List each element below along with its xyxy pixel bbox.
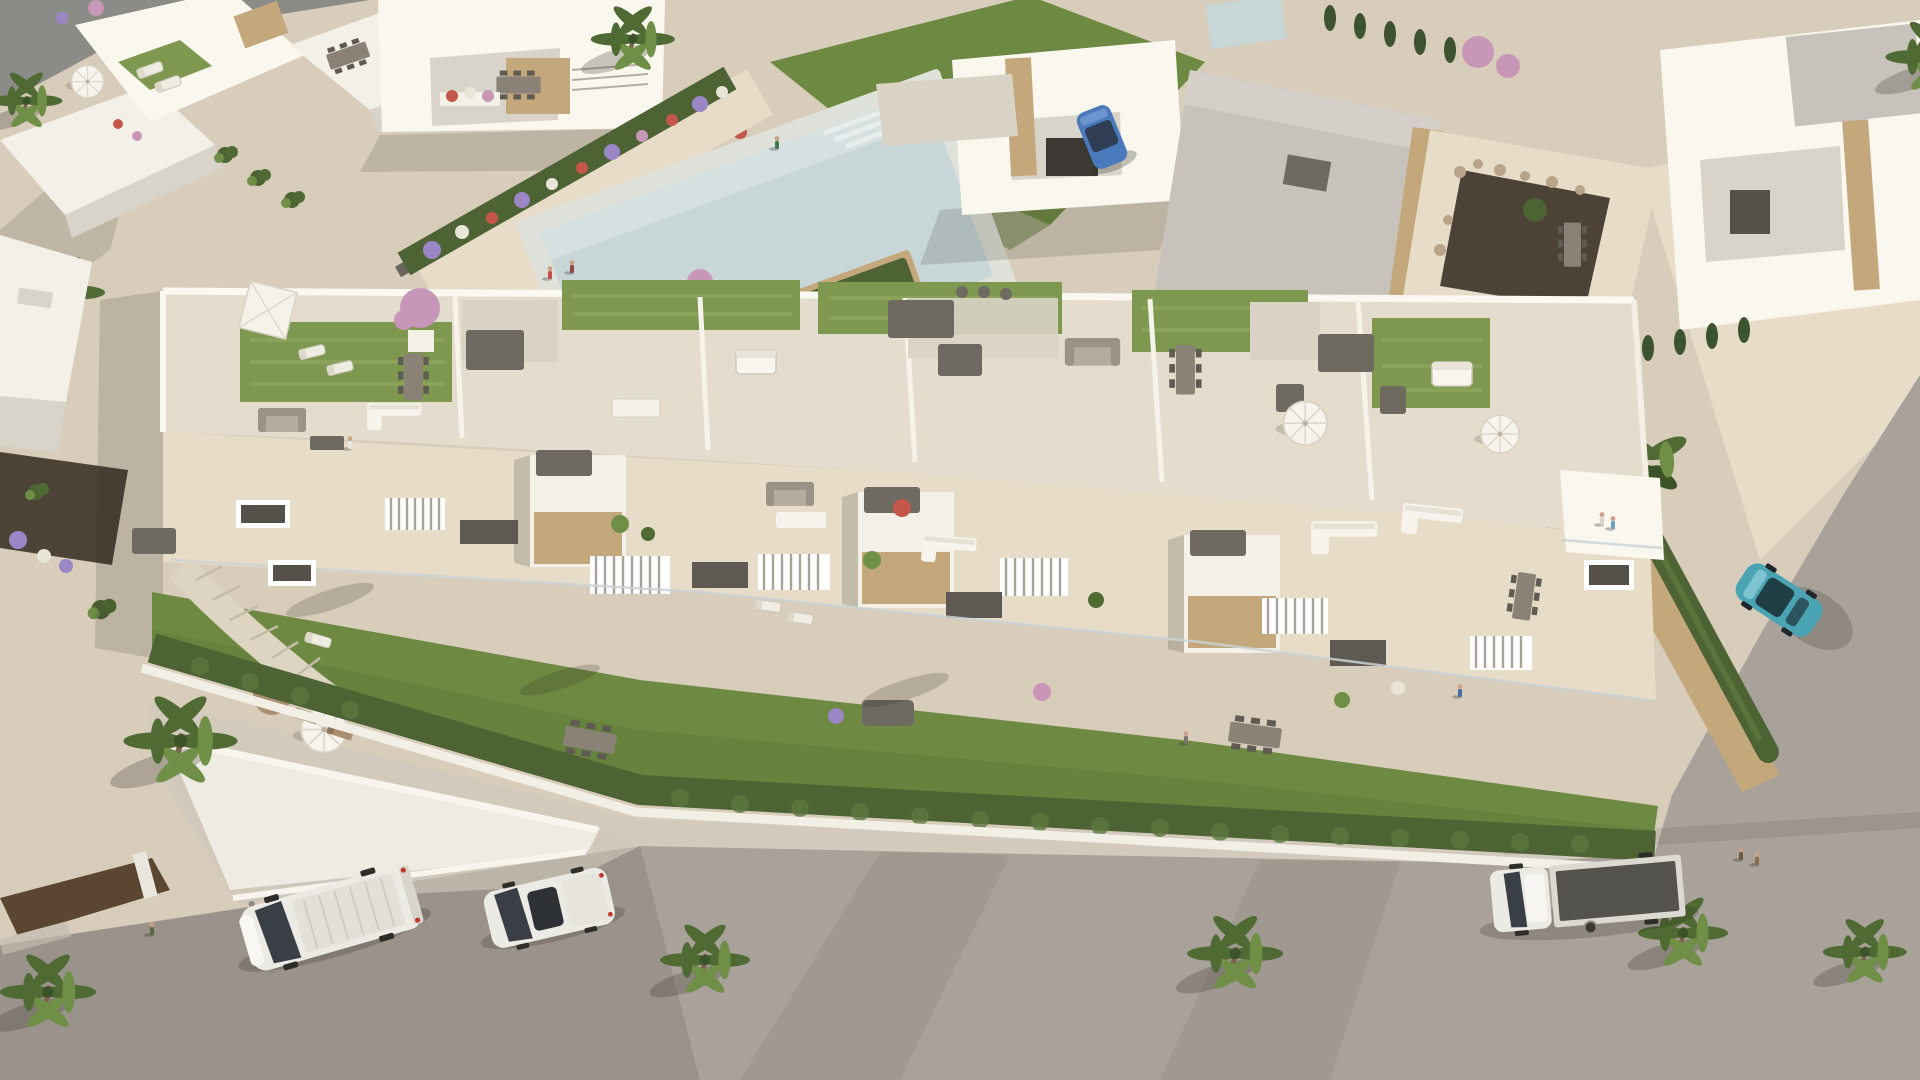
gray-sofa [1065,338,1120,366]
coffee-table [310,436,344,450]
aerial-render-canvas [0,0,1920,1080]
flatbed [1556,861,1680,921]
white-dining-set [612,392,660,424]
console [776,512,826,528]
daybed [736,350,776,374]
terrace-sofa [766,482,814,506]
aerial-render [0,0,1920,1080]
square-parasol [239,281,297,339]
bbq-grill [132,528,176,554]
gravel-drive [876,74,1018,146]
outdoor-sofa [258,408,306,432]
bougainvillea [1462,36,1494,68]
dining-set [398,353,429,400]
right-end-balcony [1560,470,1664,560]
daybed [1432,362,1472,386]
stair-hatch [466,330,524,370]
